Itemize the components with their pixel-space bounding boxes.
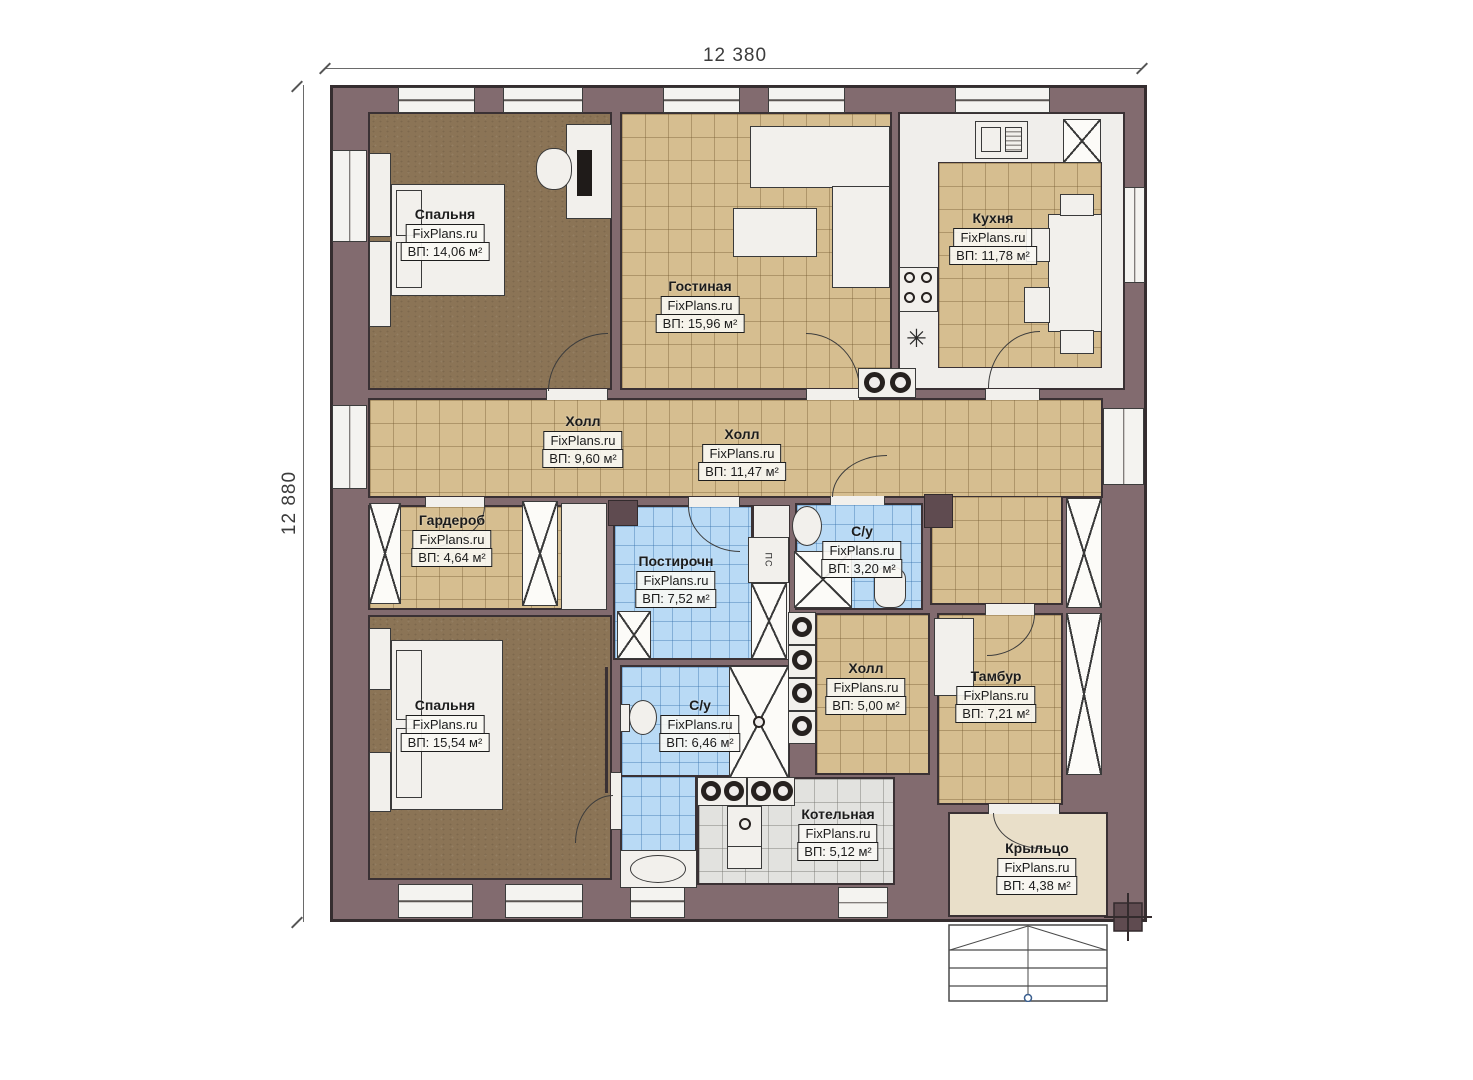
room-name: Тамбур xyxy=(955,668,1036,684)
wardrobe-cabinet xyxy=(522,501,558,606)
room-name: С/у xyxy=(821,523,902,539)
sink-drainer xyxy=(1005,127,1022,152)
nightstand xyxy=(369,752,391,812)
survey-cross-icon xyxy=(1104,893,1152,941)
stove-burner xyxy=(921,272,932,283)
room-area: ВП: 11,47 м² xyxy=(698,462,786,481)
room-name: Гостиная xyxy=(656,278,745,294)
room-label-wardrobe: Гардероб FixPlans.ru ВП: 4,64 м² xyxy=(411,512,492,565)
window xyxy=(505,884,583,918)
wardrobe-cabinet xyxy=(1066,498,1102,608)
window xyxy=(1103,408,1144,485)
chair xyxy=(1060,330,1094,354)
room-area: ВП: 4,64 м² xyxy=(411,548,492,567)
brand-box: FixPlans.ru xyxy=(822,541,901,560)
room-label-bedroom-1: Спальня FixPlans.ru ВП: 14,06 м² xyxy=(401,206,490,259)
vent-shaft xyxy=(1063,119,1101,163)
room-area: ВП: 4,38 м² xyxy=(996,876,1077,895)
pipe-ring xyxy=(751,781,771,801)
room-label-bathroom-1: С/у FixPlans.ru ВП: 3,20 м² xyxy=(821,523,902,576)
room-area: ВП: 6,46 м² xyxy=(659,733,740,752)
closet-cabinet xyxy=(561,503,607,610)
wardrobe-cabinet xyxy=(1066,613,1102,775)
brand-box: FixPlans.ru xyxy=(405,715,484,734)
window xyxy=(630,884,685,918)
bathtub xyxy=(630,855,686,883)
nightstand xyxy=(369,628,391,690)
laundry-cabinet xyxy=(751,583,787,659)
room-label-hall-2: Холл FixPlans.ru ВП: 11,47 м² xyxy=(698,426,786,479)
pipe-ring xyxy=(792,716,812,736)
room-area: ВП: 11,78 м² xyxy=(949,246,1037,265)
window xyxy=(768,87,845,113)
door-opening xyxy=(806,389,860,400)
room-area: ВП: 15,54 м² xyxy=(401,733,490,752)
window xyxy=(663,87,740,113)
window xyxy=(838,887,888,918)
vent-chimney xyxy=(924,494,953,528)
washing-machine-label: ПС xyxy=(764,553,774,568)
pipe-ring xyxy=(792,683,812,703)
vent-chimney xyxy=(608,500,638,526)
top-dimension-label: 12 380 xyxy=(645,45,825,67)
door-leaf xyxy=(605,667,608,793)
room-area: ВП: 5,00 м² xyxy=(825,696,906,715)
room-label-vestibule: Тамбур FixPlans.ru ВП: 7,21 м² xyxy=(955,668,1036,721)
toilet xyxy=(629,700,657,735)
porch-steps xyxy=(948,924,1108,1002)
room-name: Холл xyxy=(542,413,623,429)
brand-box: FixPlans.ru xyxy=(956,686,1035,705)
boiler-dial xyxy=(739,818,751,830)
hob-ring xyxy=(890,372,911,393)
room-area: ВП: 5,12 м² xyxy=(797,842,878,861)
monitor xyxy=(577,150,592,196)
nightstand xyxy=(369,153,391,237)
brand-box: FixPlans.ru xyxy=(702,444,781,463)
coffee-table xyxy=(733,208,817,257)
left-dimension-line xyxy=(303,85,304,922)
stove-burner xyxy=(904,292,915,303)
brand-box: FixPlans.ru xyxy=(660,296,739,315)
boiler xyxy=(727,806,762,869)
door-opening xyxy=(985,389,1040,400)
pipe-ring xyxy=(773,781,793,801)
top-dimension-line xyxy=(325,68,1142,69)
pipe-ring xyxy=(792,650,812,670)
sofa xyxy=(832,186,890,288)
room-name: Постирочн xyxy=(635,553,716,569)
room-label-hall-3: Холл FixPlans.ru ВП: 5,00 м² xyxy=(825,660,906,713)
chair xyxy=(1060,194,1094,216)
washing-machine: ПС xyxy=(748,537,789,583)
left-dimension-label: 12 880 xyxy=(279,443,301,563)
washbasin xyxy=(792,506,822,546)
brand-box: FixPlans.ru xyxy=(997,858,1076,877)
room-name: Крыльцо xyxy=(996,840,1077,856)
stove-burner xyxy=(921,292,932,303)
window xyxy=(398,884,473,918)
room-area: ВП: 9,60 м² xyxy=(542,449,623,468)
room-name: С/у xyxy=(659,697,740,713)
room-label-laundry: Постирочн FixPlans.ru ВП: 7,52 м² xyxy=(635,553,716,606)
room-label-kitchen: Кухня FixPlans.ru ВП: 11,78 м² xyxy=(949,210,1037,263)
pipe-ring xyxy=(701,781,721,801)
room-area: ВП: 14,06 м² xyxy=(401,242,490,261)
window xyxy=(332,150,367,242)
room-label-living: Гостиная FixPlans.ru ВП: 15,96 м² xyxy=(656,278,745,331)
snowflake-icon: ✳ xyxy=(906,327,927,352)
room-label-porch: Крыльцо FixPlans.ru ВП: 4,38 м² xyxy=(996,840,1077,893)
dining-table xyxy=(1048,214,1102,332)
pipe-ring xyxy=(792,617,812,637)
dimension-tick xyxy=(291,80,303,92)
room-area: ВП: 7,21 м² xyxy=(955,704,1036,723)
room-area: ВП: 7,52 м² xyxy=(635,589,716,608)
stove-burner xyxy=(904,272,915,283)
window xyxy=(398,87,475,113)
room-bathroom-2-floor-lower xyxy=(620,777,697,852)
brand-box: FixPlans.ru xyxy=(405,224,484,243)
window xyxy=(503,87,583,113)
brand-box: FixPlans.ru xyxy=(826,678,905,697)
desk-chair xyxy=(536,148,572,190)
floor-plan-canvas: 12 380 12 880 xyxy=(0,0,1473,1080)
brand-box: FixPlans.ru xyxy=(660,715,739,734)
brand-box: FixPlans.ru xyxy=(798,824,877,843)
dimension-tick xyxy=(291,916,303,928)
door-opening xyxy=(830,496,885,505)
boiler-divider xyxy=(728,846,761,847)
laundry-cabinet xyxy=(617,611,651,659)
brand-box: FixPlans.ru xyxy=(412,530,491,549)
brand-box: FixPlans.ru xyxy=(953,228,1032,247)
shower-drain xyxy=(753,716,765,728)
brand-box: FixPlans.ru xyxy=(636,571,715,590)
room-name: Котельная xyxy=(797,806,878,822)
room-label-boiler: Котельная FixPlans.ru ВП: 5,12 м² xyxy=(797,806,878,859)
sink-bowl xyxy=(981,127,1001,152)
chair xyxy=(1024,287,1050,323)
room-label-bedroom-2: Спальня FixPlans.ru ВП: 15,54 м² xyxy=(401,697,490,750)
room-name: Холл xyxy=(698,426,786,442)
wardrobe-cabinet xyxy=(369,503,401,604)
room-name: Спальня xyxy=(401,697,490,713)
window xyxy=(1124,187,1145,283)
room-area: ВП: 15,96 м² xyxy=(656,314,745,333)
room-name: Гардероб xyxy=(411,512,492,528)
room-name: Холл xyxy=(825,660,906,676)
room-name: Кухня xyxy=(949,210,1037,226)
room-area: ВП: 3,20 м² xyxy=(821,559,902,578)
hob-ring xyxy=(864,372,885,393)
sofa xyxy=(750,126,890,188)
nightstand xyxy=(369,241,391,327)
pipe-ring xyxy=(724,781,744,801)
room-label-hall-1: Холл FixPlans.ru ВП: 9,60 м² xyxy=(542,413,623,466)
window xyxy=(332,405,367,489)
room-label-bathroom-2: С/у FixPlans.ru ВП: 6,46 м² xyxy=(659,697,740,750)
brand-box: FixPlans.ru xyxy=(543,431,622,450)
room-name: Спальня xyxy=(401,206,490,222)
window xyxy=(955,87,1050,113)
